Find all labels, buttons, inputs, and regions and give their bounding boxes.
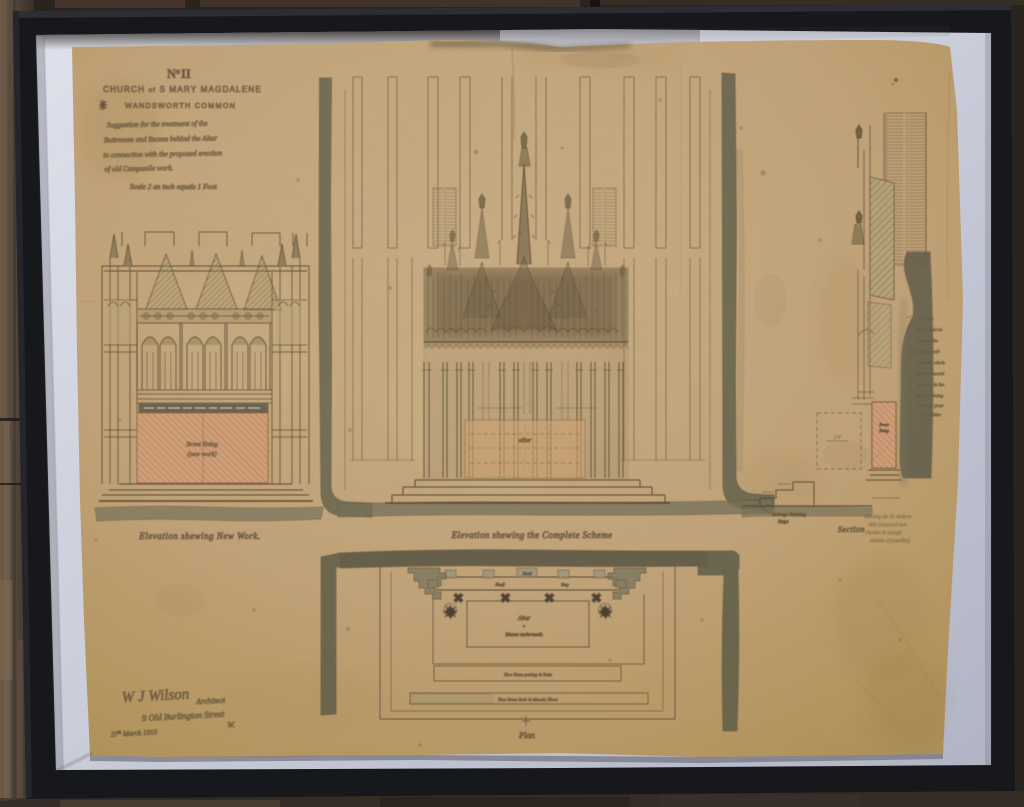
svg-text:Brass lining: Brass lining xyxy=(186,441,218,448)
svg-text:WANDSWORTH COMMON: WANDSWORTH COMMON xyxy=(125,101,236,110)
svg-text:Steps: Steps xyxy=(778,520,789,525)
svg-text:Architect: Architect xyxy=(195,696,226,707)
svg-text:scheme of panelling: scheme of panelling xyxy=(870,539,910,544)
svg-text:existing wall: existing wall xyxy=(916,349,940,354)
svg-text:W.: W. xyxy=(227,720,235,729)
svg-text:Showing the St. Andrew: Showing the St. Andrew xyxy=(864,515,912,520)
svg-text:The new: The new xyxy=(918,316,934,321)
svg-text:forward & the: forward & the xyxy=(918,382,944,387)
svg-text:2'0": 2'0" xyxy=(834,436,843,441)
svg-text:Average Existing: Average Existing xyxy=(771,513,807,518)
svg-text:altar proposed new: altar proposed new xyxy=(868,523,907,528)
svg-text:Brass: Brass xyxy=(879,422,889,427)
svg-text:reredos & canopy: reredos & canopy xyxy=(866,531,903,536)
svg-text:Shelf: Shelf xyxy=(496,582,506,587)
svg-text:Scale 2 an inch equals 1 Foot: Scale 2 an inch equals 1 Foot xyxy=(130,182,218,191)
svg-text:CHURCH of S MARY MAGDALENE: CHURCH of S MARY MAGDALENE xyxy=(103,85,262,94)
svg-text:New Stone paving & Setts: New Stone paving & Setts xyxy=(503,672,552,677)
svg-text:built of the: built of the xyxy=(918,338,938,343)
svg-text:Mensa underneath: Mensa underneath xyxy=(504,633,543,638)
svg-text:New Stone kerb & Mosaic Floor: New Stone kerb & Mosaic Floor xyxy=(497,697,558,702)
svg-text:lower in front: lower in front xyxy=(918,403,944,408)
svg-text:of the Altar.: of the Altar. xyxy=(920,412,941,417)
svg-text:Elevation shewing the Compl: Elevation shewing the Complete Scheme xyxy=(451,530,613,540)
svg-text:Shelf: Shelf xyxy=(523,571,533,576)
svg-text:Altar: Altar xyxy=(517,616,531,622)
svg-text:Step: Step xyxy=(561,582,569,587)
svg-text:Section: Section xyxy=(838,525,865,534)
svg-text:lining: lining xyxy=(879,428,889,433)
svg-text:+: + xyxy=(523,625,526,630)
svg-text:Plan: Plan xyxy=(518,730,535,740)
svg-text:altar: altar xyxy=(519,437,532,444)
svg-text:work might be: work might be xyxy=(916,327,942,332)
svg-text:Suggestion for the treatmen: Suggestion for the treatment of the xyxy=(107,119,209,130)
svg-text:Elevation shewing New Work.: Elevation shewing New Work. xyxy=(138,531,260,541)
svg-text:over the whole: over the whole xyxy=(918,360,945,365)
svg-text:Reredos moved: Reredos moved xyxy=(915,371,945,376)
svg-text:(new work): (new work) xyxy=(187,451,216,458)
svg-text:of old Campanile work.: of old Campanile work. xyxy=(104,163,173,173)
